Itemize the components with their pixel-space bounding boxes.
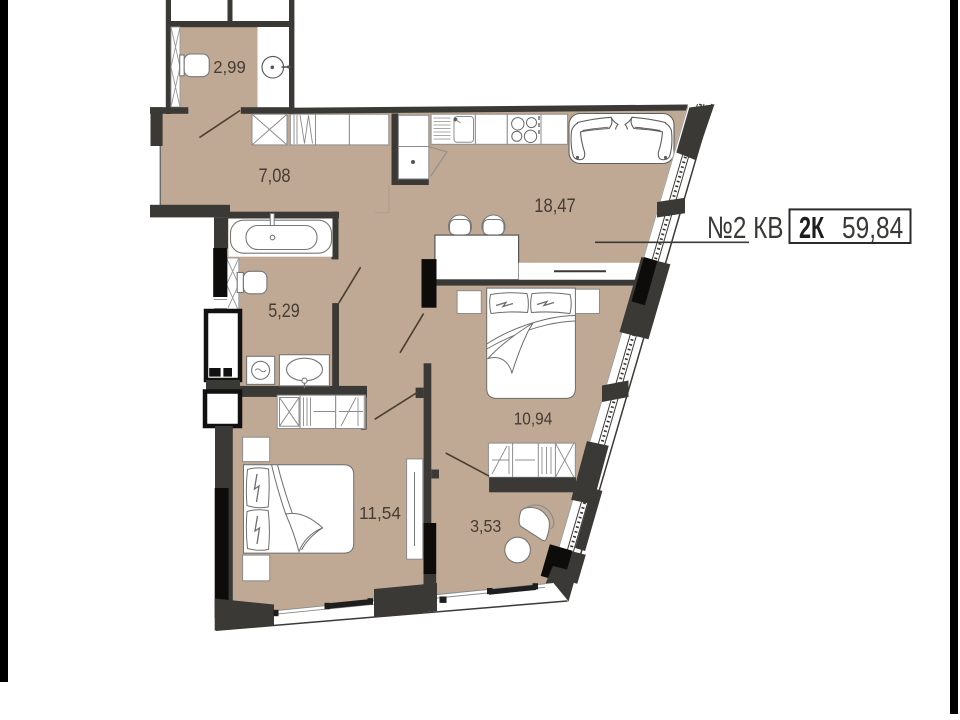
svg-text:59,84: 59,84 xyxy=(842,210,903,245)
svg-text:10,94: 10,94 xyxy=(514,409,553,429)
svg-text:2К: 2К xyxy=(799,210,824,245)
svg-text:18,47: 18,47 xyxy=(534,196,576,217)
svg-text:5,29: 5,29 xyxy=(268,301,300,322)
svg-text:2,99: 2,99 xyxy=(213,57,246,77)
svg-text:3,53: 3,53 xyxy=(470,516,501,536)
svg-text:7,08: 7,08 xyxy=(259,166,291,187)
svg-text:№2 КВ: №2 КВ xyxy=(707,210,784,245)
svg-text:11,54: 11,54 xyxy=(359,503,401,523)
